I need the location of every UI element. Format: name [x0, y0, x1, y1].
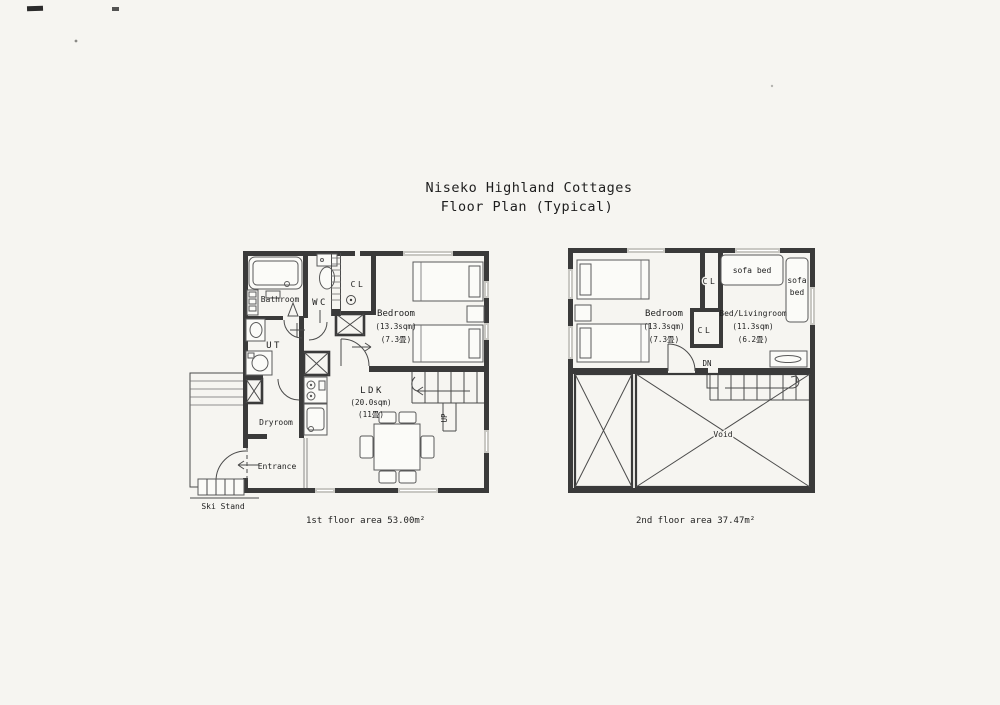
- bedroom-tatami-label: (7.3畳): [381, 335, 411, 344]
- bedroom2-label: Bedroom: [645, 309, 683, 319]
- ldk-tatami-label: (11畳): [358, 410, 384, 419]
- bedroom-area-label: (13.3sqm): [375, 322, 416, 331]
- kitchen-sink: [304, 404, 327, 435]
- void-label: Void: [713, 430, 732, 439]
- bedroom-door-arc: [341, 339, 369, 366]
- sofa-bed-side-label-1: sofa: [787, 276, 806, 285]
- dryroom-label: Dryroom: [259, 418, 293, 427]
- floorplan-svg: Niseko Highland Cottages Floor Plan (Typ…: [0, 0, 1000, 705]
- stairs-up-label: UP: [440, 413, 449, 423]
- washing-machine: [246, 351, 272, 375]
- bed: [413, 325, 483, 362]
- ldk-label: LDK: [360, 386, 384, 396]
- sofa-bed-side-label-2: bed: [790, 288, 805, 297]
- bed: [577, 324, 649, 362]
- cl-label: CL: [351, 280, 366, 289]
- wc-door-arc: [309, 322, 327, 340]
- cl-upper-label: CL: [703, 277, 718, 286]
- entrance-arrow: [238, 461, 259, 469]
- dining-set: [360, 412, 434, 483]
- dryroom-door-arc: [278, 379, 299, 400]
- stairs-first-floor: UP: [412, 372, 484, 431]
- shaft-box: [246, 379, 262, 403]
- title-line2: Floor Plan (Typical): [441, 199, 614, 215]
- stairs-second-floor: [707, 374, 810, 400]
- stairs-dn-label: DN: [702, 359, 711, 368]
- title-line1: Niseko Highland Cottages: [425, 180, 632, 196]
- nightstand: [467, 306, 484, 322]
- direction-arrow: [352, 343, 371, 351]
- bed: [577, 260, 649, 299]
- entrance-door-arc: [216, 451, 246, 481]
- cl-lower-label: CL: [698, 326, 713, 335]
- washbasin: [246, 319, 265, 341]
- bedroom-label: Bedroom: [377, 309, 415, 319]
- door-arcs-first-floor: [216, 320, 369, 481]
- shaft-box: [304, 352, 329, 375]
- scan-artifacts: [27, 6, 773, 87]
- ldk-area-label: (20.0sqm): [350, 398, 391, 407]
- bed: [413, 262, 483, 301]
- bedroom2-area-label: (13.3sqm): [643, 322, 684, 331]
- second-floor-plan: Bedroom (13.3sqm) (7.3畳) CL CL Bed/Livin…: [568, 248, 815, 526]
- toilet: [317, 254, 337, 289]
- entrance-label: Entrance: [258, 462, 297, 471]
- shaft-box: [336, 314, 364, 335]
- side-table: [770, 351, 807, 367]
- wc-label: WC: [312, 298, 328, 308]
- first-floor-plan: UP: [190, 251, 489, 526]
- page-title: Niseko Highland Cottages Floor Plan (Typ…: [425, 180, 632, 215]
- ut-label: UT: [266, 341, 282, 351]
- scanned-floor-plan-page: Niseko Highland Cottages Floor Plan (Typ…: [0, 0, 1000, 705]
- pole-mark: [347, 296, 356, 305]
- livingroom-label: Bed/Livingroom: [719, 309, 787, 318]
- bedroom2-door-arc: [668, 344, 695, 371]
- nightstand: [575, 305, 591, 321]
- ski-stand-label: Ski Stand: [201, 502, 245, 511]
- kitchen-stove: [304, 377, 327, 403]
- void-area: [575, 374, 810, 487]
- livingroom-area-label: (11.3sqm): [732, 322, 773, 331]
- bathroom-label: Bathroom: [261, 295, 300, 304]
- bedroom2-tatami-label: (7.3畳): [649, 335, 679, 344]
- sofa-bed-top-label: sofa bed: [733, 266, 772, 275]
- second-floor-caption: 2nd floor area 37.47m²: [636, 516, 755, 526]
- door-swing-mark: [288, 303, 298, 316]
- bathtub: [249, 257, 302, 289]
- livingroom-tatami-label: (6.2畳): [738, 335, 768, 344]
- first-floor-caption: 1st floor area 53.00m²: [306, 516, 425, 526]
